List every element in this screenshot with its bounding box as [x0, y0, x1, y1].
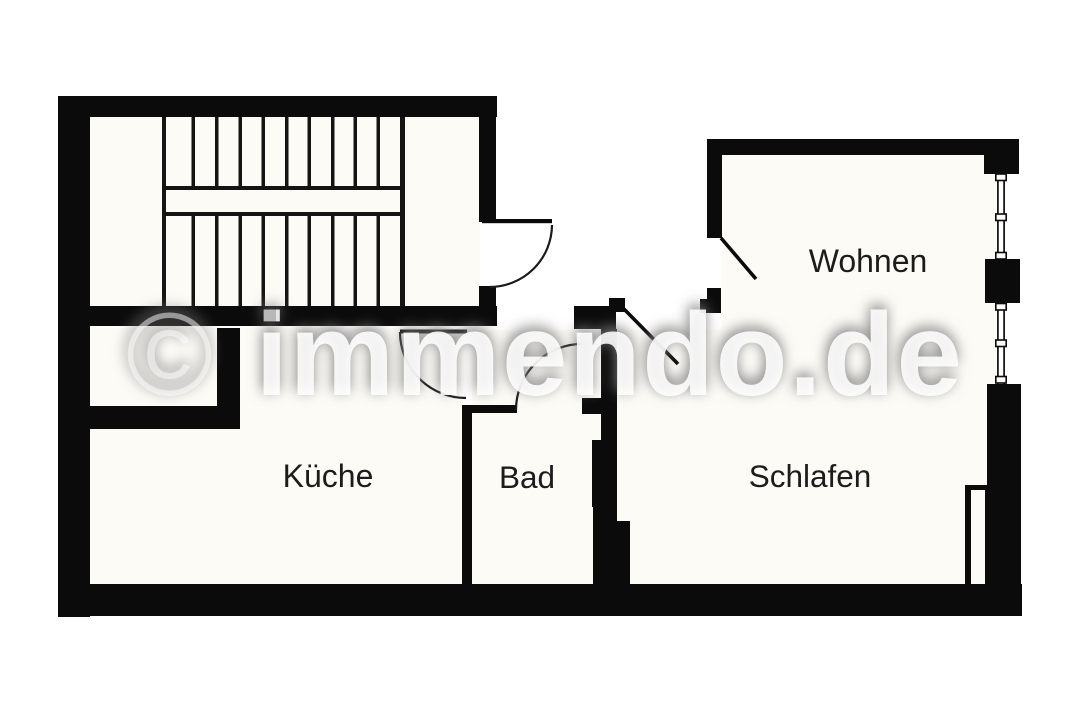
- svg-text:Schlafen: Schlafen: [749, 458, 872, 494]
- svg-text:Wohnen: Wohnen: [809, 243, 928, 279]
- svg-text:Bad: Bad: [499, 459, 555, 495]
- svg-text:Küche: Küche: [283, 458, 374, 494]
